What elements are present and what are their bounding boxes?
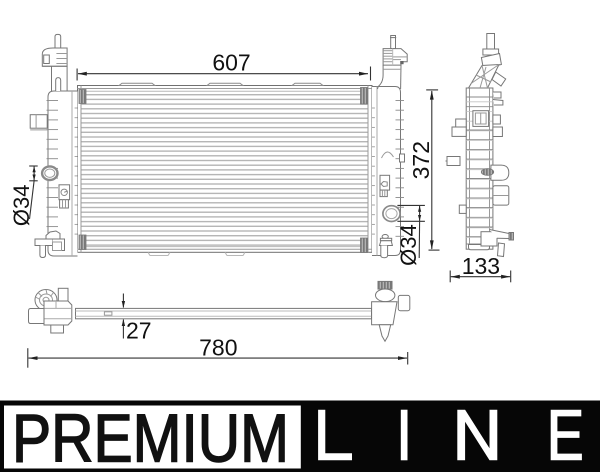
svg-text:Ø34: Ø34 <box>396 224 421 266</box>
svg-text:372: 372 <box>408 141 434 179</box>
svg-text:PREMIUM: PREMIUM <box>12 400 289 472</box>
svg-text:780: 780 <box>199 335 237 361</box>
svg-text:607: 607 <box>212 50 250 76</box>
svg-text:Ø34: Ø34 <box>9 185 34 227</box>
svg-text:133: 133 <box>462 253 500 279</box>
svg-text:27: 27 <box>126 318 152 344</box>
